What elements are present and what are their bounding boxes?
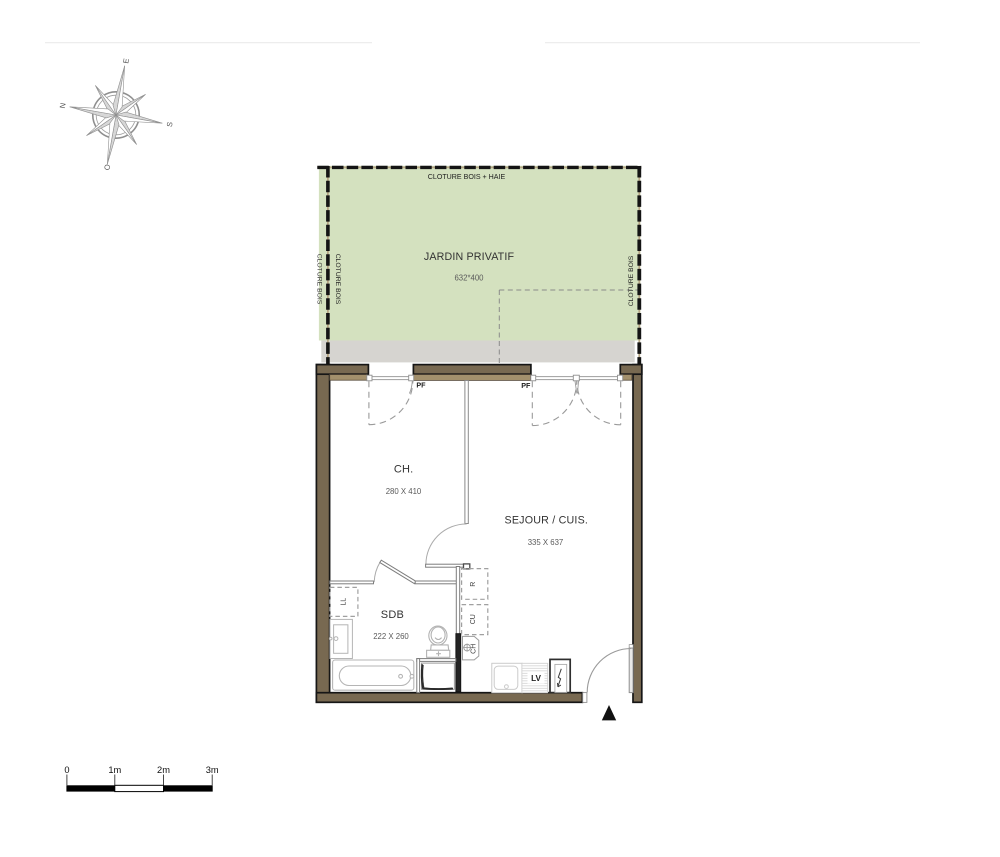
svg-text:1m: 1m (108, 765, 121, 775)
svg-text:3m: 3m (206, 765, 219, 775)
svg-text:CLOTURE BOIS: CLOTURE BOIS (316, 254, 323, 305)
svg-text:LL: LL (340, 598, 347, 606)
svg-text:CH.: CH. (394, 464, 414, 476)
svg-text:PF: PF (416, 381, 426, 390)
svg-text:2m: 2m (157, 765, 170, 775)
svg-text:JARDIN PRIVATIF: JARDIN PRIVATIF (424, 251, 515, 263)
svg-text:280 X 410: 280 X 410 (386, 487, 422, 496)
svg-text:CLOTURE BOIS: CLOTURE BOIS (628, 255, 635, 306)
svg-text:SDB: SDB (381, 609, 404, 621)
svg-text:335 X 637: 335 X 637 (528, 538, 564, 547)
svg-text:CLOTURE BOIS + HAIE: CLOTURE BOIS + HAIE (428, 173, 506, 181)
svg-text:SEJOUR / CUIS.: SEJOUR / CUIS. (505, 515, 589, 527)
svg-text:LV: LV (531, 674, 541, 683)
svg-text:222 X 260: 222 X 260 (373, 632, 409, 641)
svg-text:PF: PF (521, 381, 531, 390)
svg-text:CLOTURE BOIS: CLOTURE BOIS (334, 254, 341, 305)
svg-text:CH: CH (470, 644, 477, 654)
svg-text:CU: CU (470, 614, 477, 624)
svg-text:R: R (470, 582, 477, 587)
svg-text:0: 0 (64, 765, 69, 775)
svg-text:632*400: 632*400 (454, 273, 484, 282)
